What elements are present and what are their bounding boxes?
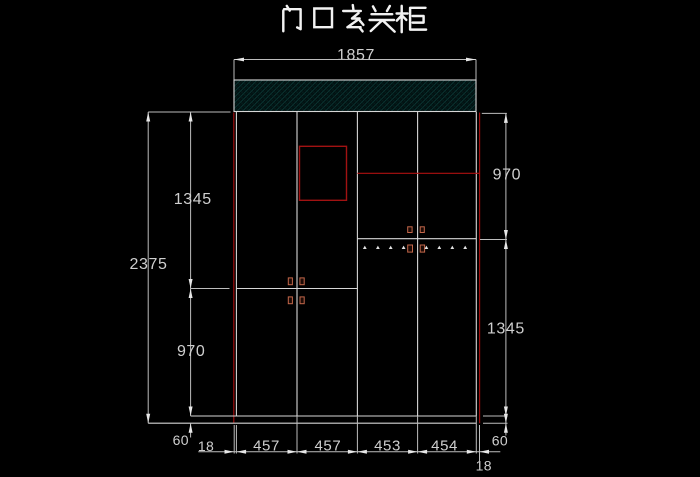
svg-text:60: 60 [492,433,508,449]
svg-text:1345: 1345 [174,191,212,208]
svg-text:970: 970 [493,167,522,184]
svg-text:457: 457 [314,438,341,455]
svg-text:970: 970 [177,343,206,360]
svg-text:2375: 2375 [130,256,168,273]
svg-text:18: 18 [198,438,214,454]
svg-text:1857: 1857 [337,47,375,64]
svg-text:1345: 1345 [487,321,525,338]
svg-text:60: 60 [173,432,189,448]
svg-text:18: 18 [476,458,492,474]
svg-text:453: 453 [374,438,401,455]
svg-text:457: 457 [253,438,280,455]
svg-text:454: 454 [431,438,458,455]
